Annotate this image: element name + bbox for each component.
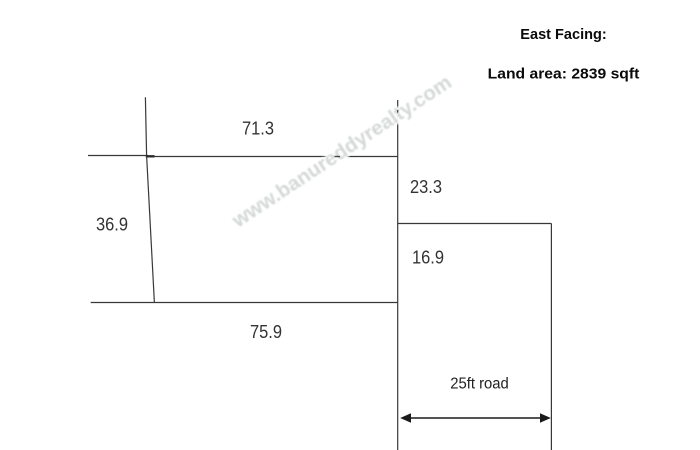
svg-text:East Facing:: East Facing: (520, 26, 606, 43)
svg-text:36.9: 36.9 (96, 214, 128, 234)
svg-text:71.3: 71.3 (242, 119, 274, 139)
svg-text:23.3: 23.3 (410, 177, 442, 197)
svg-text:16.9: 16.9 (412, 248, 444, 268)
svg-text:Land area: 2839 sqft: Land area: 2839 sqft (488, 66, 640, 83)
svg-text:25ft road: 25ft road (450, 375, 509, 392)
svg-text:75.9: 75.9 (250, 322, 282, 342)
